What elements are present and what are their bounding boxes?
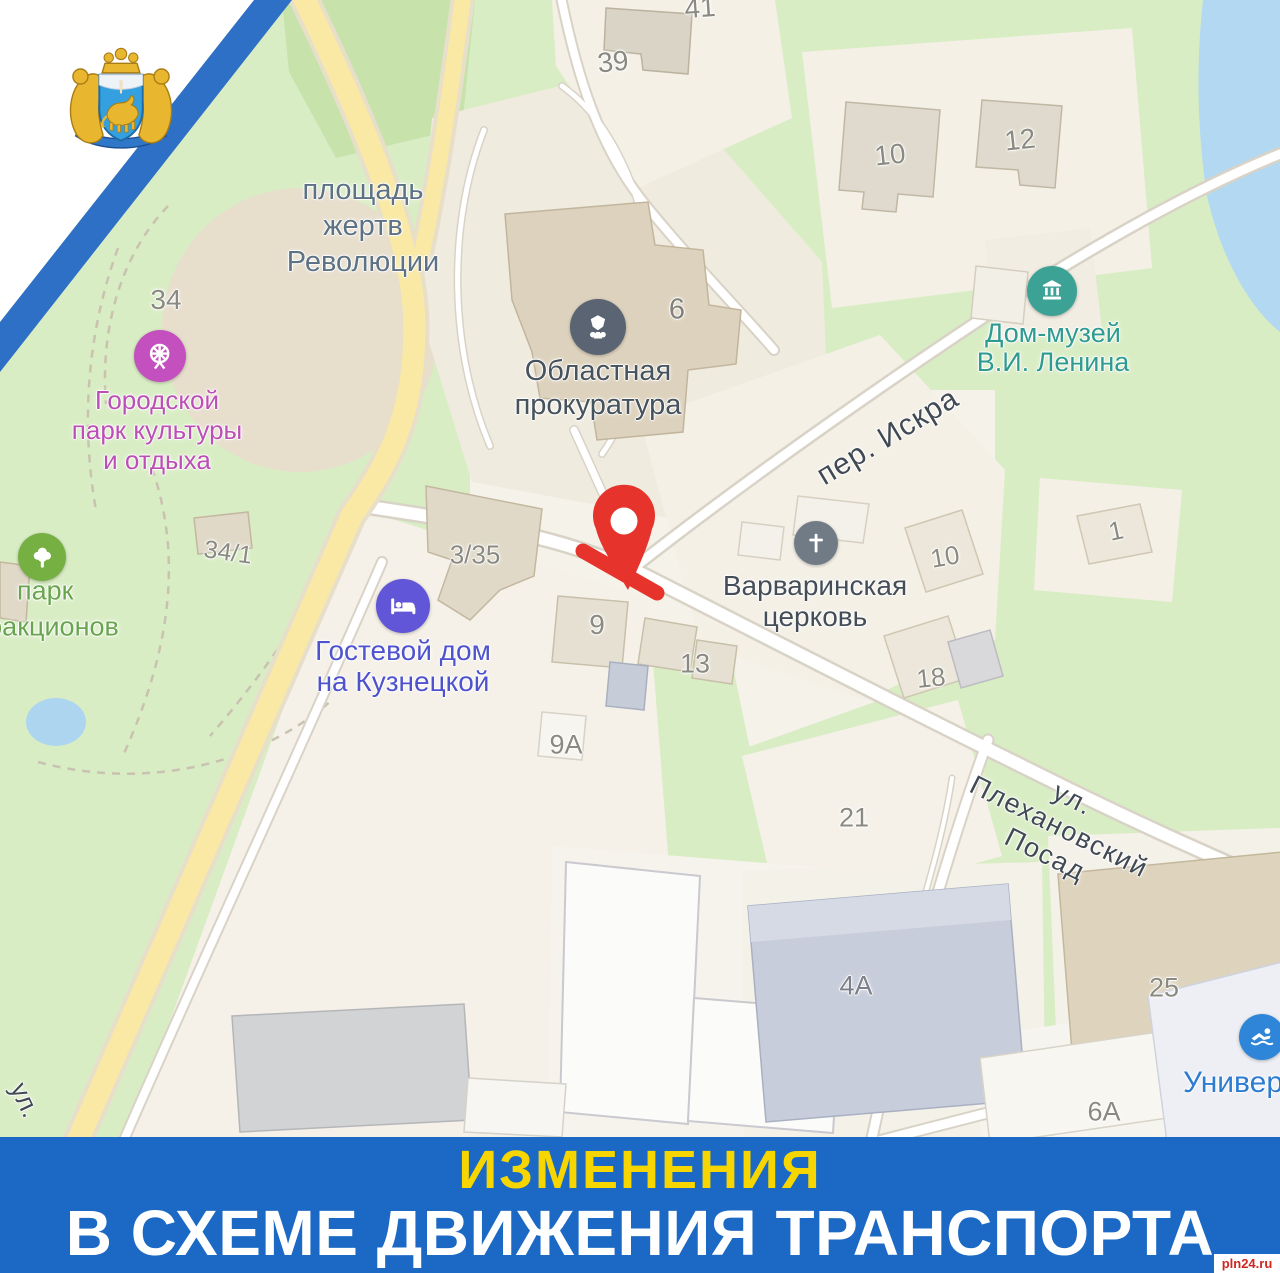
number-9: 9 bbox=[589, 609, 605, 641]
label-gostevoy-dom: Гостевой дом на Кузнецкой bbox=[315, 635, 491, 697]
banner-subtitle: В СХЕМЕ ДВИЖЕНИЯ ТРАНСПОРТА bbox=[66, 1201, 1215, 1266]
label-attrakcionov: аттракционов bbox=[0, 612, 119, 643]
label-varvarinskaya-tserkov: Варваринская церковь bbox=[723, 570, 907, 632]
park-tree-icon bbox=[18, 533, 66, 581]
street-per-iskra: пер. Искра bbox=[811, 381, 965, 492]
church-icon bbox=[794, 521, 838, 565]
number-39: 39 bbox=[596, 44, 630, 79]
street-ul: ул. bbox=[4, 1078, 47, 1123]
number-4a: 4А bbox=[839, 971, 872, 1002]
number-10-top: 10 bbox=[873, 137, 907, 172]
banner-title: ИЗМЕНЕНИЯ bbox=[458, 1143, 821, 1198]
label-oblastnaya-prokuratura: Областная прокуратура bbox=[515, 354, 682, 422]
announcement-banner: ИЗМЕНЕНИЯ В СХЕМЕ ДВИЖЕНИЯ ТРАНСПОРТА bbox=[0, 1137, 1280, 1273]
number-25: 25 bbox=[1149, 973, 1179, 1004]
pskov-coat-of-arms bbox=[55, 42, 187, 162]
number-12: 12 bbox=[1003, 122, 1037, 157]
number-13: 13 bbox=[680, 649, 710, 680]
museum-icon bbox=[1027, 266, 1077, 316]
number-21: 21 bbox=[839, 803, 869, 834]
sport-icon bbox=[1239, 1014, 1280, 1060]
number-6a: 6А bbox=[1087, 1097, 1120, 1128]
label-univer: Универ bbox=[1183, 1066, 1280, 1100]
hotel-icon bbox=[376, 579, 430, 633]
number-6: 6 bbox=[669, 294, 685, 327]
poster-canvas: площадь жертв Революции34Городской парк … bbox=[0, 0, 1280, 1273]
label-ploshchad-zhertv-revolyutsii: площадь жертв Революции bbox=[287, 172, 439, 280]
number-41: 41 bbox=[683, 0, 716, 25]
watermark-pln24: pln24.ru bbox=[1214, 1254, 1280, 1273]
number-1: 1 bbox=[1106, 514, 1127, 547]
label-dom-muzey-lenina: Дом-музей В.И. Ленина bbox=[977, 319, 1130, 377]
number-34-1: 34/1 bbox=[202, 535, 254, 570]
street-plekhanovskiy-posad: ул. Плехановский Посад bbox=[939, 736, 1178, 918]
number-9a: 9А bbox=[549, 730, 582, 761]
number-10-mid: 10 bbox=[928, 539, 962, 575]
number-3-35: 3/35 bbox=[450, 540, 501, 571]
number-18: 18 bbox=[915, 661, 947, 695]
prosecutor-office-icon bbox=[570, 299, 626, 355]
